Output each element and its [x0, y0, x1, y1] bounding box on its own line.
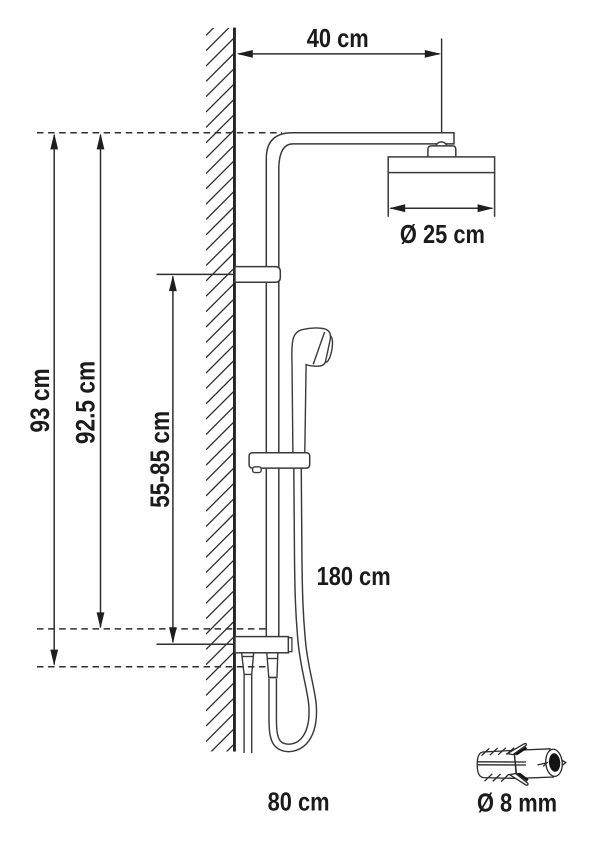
svg-text:55-85 cm: 55-85 cm	[145, 411, 175, 508]
svg-text:93 cm: 93 cm	[25, 368, 55, 432]
svg-text:Ø 25 cm: Ø 25 cm	[400, 220, 485, 249]
svg-text:80 cm: 80 cm	[268, 788, 330, 817]
svg-text:92.5 cm: 92.5 cm	[71, 361, 101, 444]
svg-text:40 cm: 40 cm	[307, 24, 369, 53]
svg-text:Ø 8 mm: Ø 8 mm	[477, 789, 557, 818]
svg-text:180 cm: 180 cm	[317, 562, 391, 591]
